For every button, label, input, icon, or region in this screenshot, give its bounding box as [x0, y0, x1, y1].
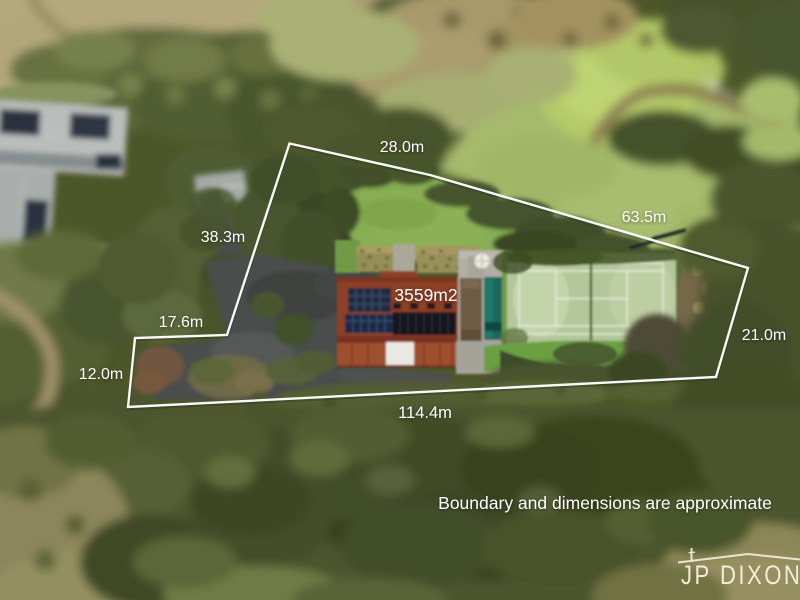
svg-text:Boundary and dimensions are ap: Boundary and dimensions are approximate	[438, 493, 772, 513]
svg-text:38.3m: 38.3m	[201, 229, 245, 246]
svg-text:114.4m: 114.4m	[398, 404, 452, 422]
svg-text:21.0m: 21.0m	[742, 327, 786, 344]
svg-text:28.0m: 28.0m	[380, 139, 424, 156]
svg-text:JP DIXON: JP DIXON	[681, 561, 800, 591]
svg-text:12.0m: 12.0m	[79, 366, 123, 383]
svg-text:63.5m: 63.5m	[622, 209, 666, 226]
svg-text:17.6m: 17.6m	[159, 314, 203, 331]
svg-text:3559m2: 3559m2	[394, 285, 457, 305]
